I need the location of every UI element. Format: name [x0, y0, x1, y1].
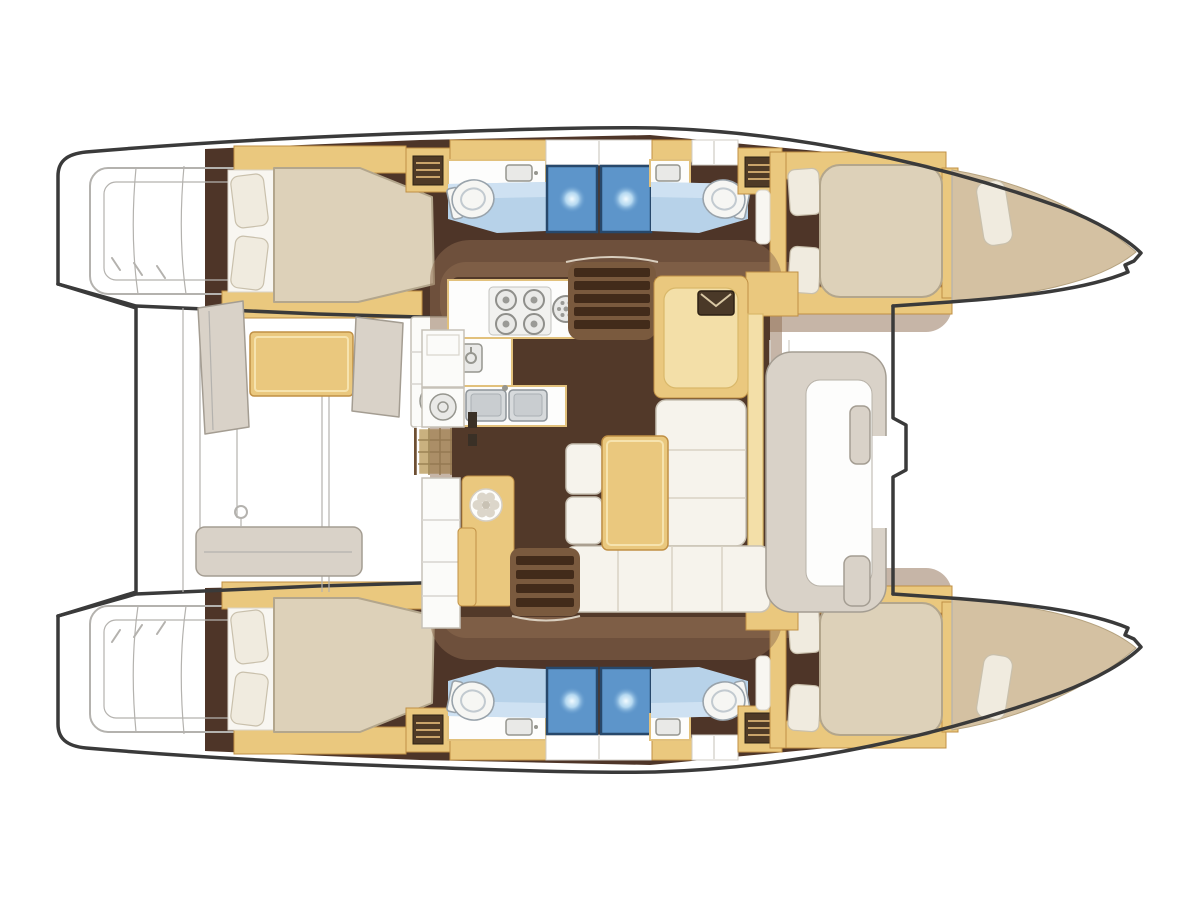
shower-head-glow [558, 185, 586, 213]
pillow [787, 168, 821, 216]
sofa-back-cushions [656, 400, 746, 546]
companionway-stairs-top [566, 257, 658, 340]
catamaran-deck-plan: Catamaran deck plan [0, 0, 1200, 900]
loose-cushion [566, 497, 602, 544]
aft-cockpit [183, 301, 462, 592]
door-jamb-mark [468, 412, 477, 428]
stern-crossbeam [58, 284, 136, 616]
pillow [230, 235, 269, 291]
deck-plan-drawing [0, 0, 1200, 900]
deck-hatch-icon [406, 148, 450, 192]
cockpit-bench [352, 317, 403, 417]
basin-sink [506, 165, 532, 181]
double-berth [820, 165, 942, 297]
loose-cushion [566, 444, 602, 494]
side-seat [756, 190, 770, 244]
head-cabinet [450, 140, 546, 162]
basin-sink [656, 165, 680, 181]
cockpit-table [250, 332, 353, 396]
head-cabinet [652, 140, 692, 162]
door-jamb-mark [468, 434, 477, 446]
aft-wall-cabinet [422, 478, 460, 628]
sofa-bottom-cushions [566, 546, 770, 612]
saloon-table [602, 436, 668, 550]
shower-head-glow [612, 185, 640, 213]
mast-post-column [458, 476, 514, 606]
aft-cabin [222, 146, 450, 318]
bench-armrest [850, 406, 870, 464]
saloon [422, 240, 798, 660]
table-base-flower [470, 489, 502, 521]
forward-cockpit [766, 306, 906, 612]
fridge-unit [422, 330, 464, 427]
nav-station [654, 276, 748, 398]
bow-locker [952, 170, 1136, 301]
bench-armrest [844, 556, 870, 606]
aft-head [446, 140, 546, 233]
helm-seat [198, 301, 249, 434]
forward-corner-seat [746, 272, 798, 316]
nav-hatch-icon [698, 291, 734, 315]
pillow [230, 173, 269, 229]
companionway-stairs-bottom [510, 548, 580, 621]
double-sink [466, 385, 547, 421]
bridgedeck-front-edge [893, 306, 906, 594]
